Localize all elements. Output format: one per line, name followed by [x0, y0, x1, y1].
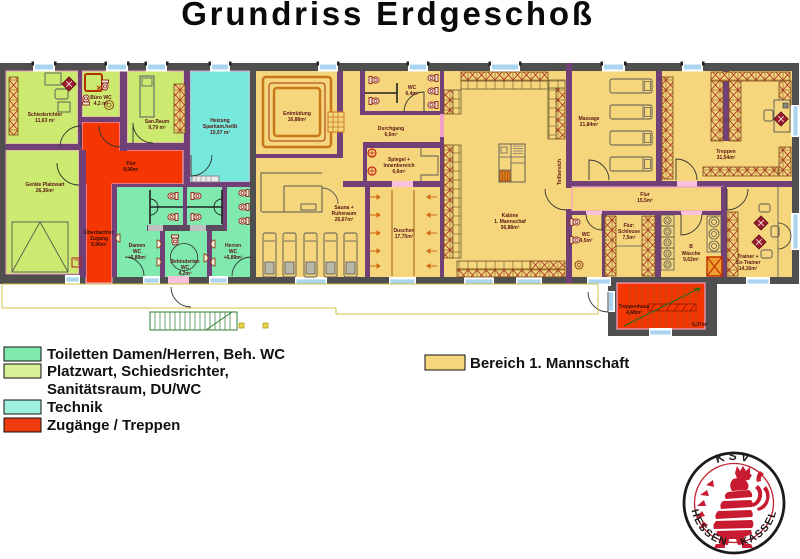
svg-text:6,6m²: 6,6m² — [384, 132, 397, 138]
svg-text:Teilbereich: Teilbereich — [557, 159, 563, 185]
svg-text:Sanitätsraum, DU/WC: Sanitätsraum, DU/WC — [47, 381, 201, 398]
svg-text:9,79 m²: 9,79 m² — [148, 125, 166, 131]
svg-text:15,5m²: 15,5m² — [637, 198, 653, 204]
svg-text:Zugänge / Treppen: Zugänge / Treppen — [47, 417, 180, 434]
svg-text:4,5m²: 4,5m² — [579, 238, 592, 244]
svg-text:5,96m²: 5,96m² — [91, 242, 107, 248]
svg-text:31,54m²: 31,54m² — [717, 155, 736, 161]
svg-text:7,5m²: 7,5m² — [622, 235, 635, 241]
svg-text:11,63 m²: 11,63 m² — [35, 118, 55, 124]
svg-text:Technik: Technik — [47, 399, 103, 416]
svg-text:B: B — [689, 244, 693, 250]
svg-text:4,2m²: 4,2m² — [178, 271, 191, 277]
svg-text:9,96m²: 9,96m² — [123, 167, 139, 173]
svg-text:4,2 m²: 4,2 m² — [94, 101, 109, 107]
svg-text:26,67m²: 26,67m² — [335, 217, 354, 223]
svg-text:Toiletten Damen/Herren, Beh. W: Toiletten Damen/Herren, Beh. WC — [47, 346, 285, 363]
svg-text:Bereich 1. Mannschaft: Bereich 1. Mannschaft — [470, 355, 629, 372]
svg-text:Grundriss Erdgeschoß: Grundriss Erdgeschoß — [181, 0, 595, 32]
svg-text:6,37m²: 6,37m² — [692, 322, 708, 328]
svg-text:26,36m²: 26,36m² — [36, 188, 55, 194]
svg-text:56,88m²: 56,88m² — [501, 225, 520, 231]
svg-text:9,62m²: 9,62m² — [683, 257, 699, 263]
svg-text:16,88m²: 16,88m² — [288, 117, 307, 123]
svg-text:+6,89m²: +6,89m² — [224, 255, 243, 261]
svg-text:Überdachter: Überdachter — [84, 229, 114, 236]
svg-text:+6,89m²: +6,89m² — [128, 255, 147, 261]
svg-text:6,6m²: 6,6m² — [392, 169, 405, 175]
svg-text:6,4m²: 6,4m² — [405, 91, 418, 97]
svg-text:15,97 m²: 15,97 m² — [210, 130, 230, 136]
svg-text:14,16m²: 14,16m² — [739, 266, 758, 272]
svg-text:4,68m²: 4,68m² — [626, 310, 642, 316]
svg-text:21,84m²: 21,84m² — [580, 122, 599, 128]
svg-text:17,75m²: 17,75m² — [395, 234, 414, 240]
svg-text:Platzwart, Schiedsrichter,: Platzwart, Schiedsrichter, — [47, 363, 229, 380]
